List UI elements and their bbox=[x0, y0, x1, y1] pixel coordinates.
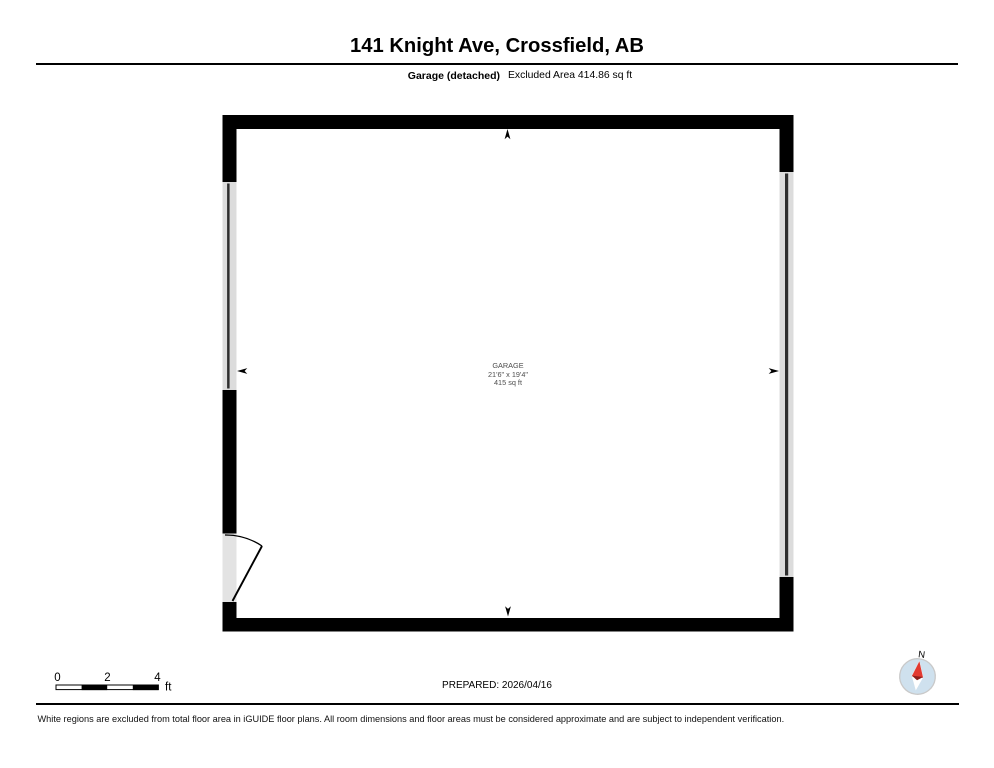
svg-text:N: N bbox=[918, 649, 926, 661]
